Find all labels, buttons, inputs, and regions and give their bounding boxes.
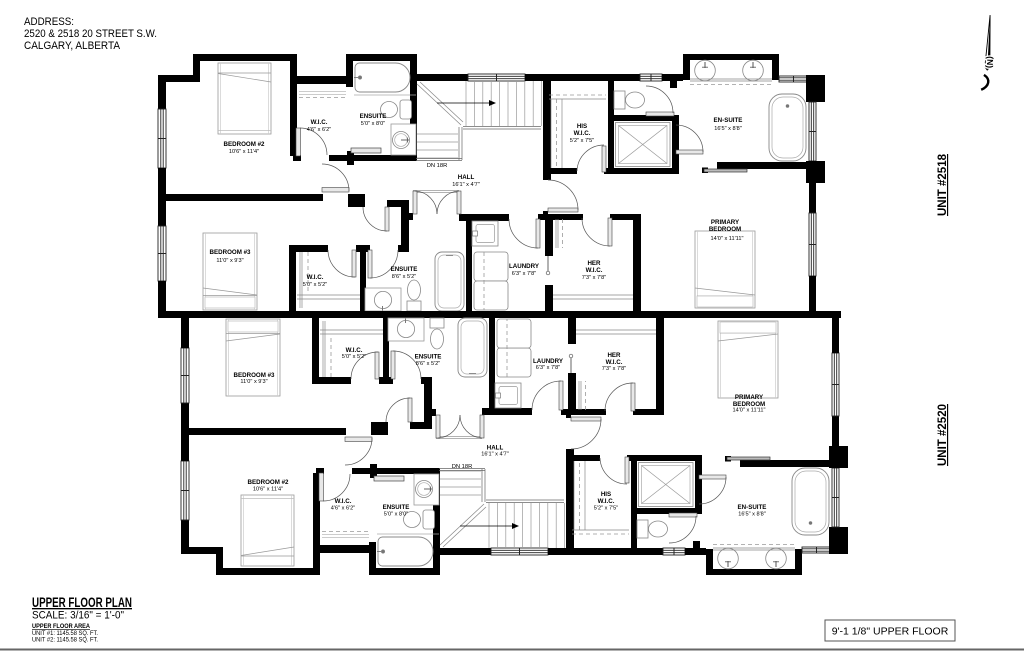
svg-text:5'0" x 5'2": 5'0" x 5'2"	[342, 354, 366, 360]
svg-text:9'-1 1/8" UPPER FLOOR: 9'-1 1/8" UPPER FLOOR	[832, 626, 949, 638]
svg-text:BEDROOM: BEDROOM	[709, 226, 741, 233]
svg-text:UNIT #2520: UNIT #2520	[937, 404, 949, 466]
svg-text:5'0" x 8'0": 5'0" x 8'0"	[384, 512, 408, 518]
svg-text:CALGARY, ALBERTA: CALGARY, ALBERTA	[24, 40, 121, 52]
svg-text:10'6" x 11'4": 10'6" x 11'4"	[229, 149, 259, 155]
svg-text:6'3" x 7'8": 6'3" x 7'8"	[512, 271, 536, 277]
svg-text:ENSUITE: ENSUITE	[415, 354, 442, 361]
svg-text:7'3" x 7'8": 7'3" x 7'8"	[582, 275, 606, 281]
svg-text:6'3" x 7'8": 6'3" x 7'8"	[536, 365, 560, 371]
svg-text:W.I.C.: W.I.C.	[574, 130, 591, 137]
svg-text:SCALE: 3/16" = 1'-0": SCALE: 3/16" = 1'-0"	[32, 610, 124, 622]
svg-text:W.I.C.: W.I.C.	[307, 274, 324, 281]
svg-text:BEDROOM #3: BEDROOM #3	[234, 372, 275, 379]
svg-text:5'2" x 7'5": 5'2" x 7'5"	[594, 506, 618, 512]
svg-text:LAUNDRY: LAUNDRY	[509, 263, 540, 270]
svg-text:W.I.C.: W.I.C.	[311, 119, 328, 126]
svg-text:W.I.C.: W.I.C.	[346, 347, 363, 354]
svg-text:HER: HER	[587, 260, 601, 267]
svg-text:2520 & 2518 20 STREET S.W.: 2520 & 2518 20 STREET S.W.	[24, 28, 157, 40]
svg-text:(N): (N)	[985, 56, 996, 68]
svg-text:11'0" x 9'3": 11'0" x 9'3"	[216, 258, 243, 264]
svg-text:5'2" x 7'5": 5'2" x 7'5"	[570, 138, 594, 144]
svg-text:5'0" x 8'0": 5'0" x 8'0"	[361, 121, 385, 127]
svg-text:16'1" x 4'7": 16'1" x 4'7"	[481, 452, 509, 458]
svg-text:W.I.C.: W.I.C.	[598, 498, 615, 505]
svg-text:W.I.C.: W.I.C.	[586, 267, 603, 274]
svg-text:W.I.C.: W.I.C.	[335, 498, 352, 505]
svg-text:BEDROOM #3: BEDROOM #3	[210, 249, 251, 256]
svg-text:LAUNDRY: LAUNDRY	[533, 358, 564, 365]
svg-text:UNIT #2518: UNIT #2518	[937, 153, 949, 216]
svg-text:16'1" x 4'7": 16'1" x 4'7"	[452, 182, 480, 188]
svg-text:EN-SUITE: EN-SUITE	[714, 117, 743, 124]
svg-text:ENSUITE: ENSUITE	[383, 504, 410, 511]
svg-text:7'3" x 7'8": 7'3" x 7'8"	[602, 366, 626, 372]
svg-text:W.I.C.: W.I.C.	[606, 359, 623, 366]
svg-text:HIS: HIS	[601, 491, 611, 498]
svg-text:ENSUITE: ENSUITE	[391, 266, 418, 273]
svg-text:UPPER FLOOR AREA: UPPER FLOOR AREA	[32, 623, 90, 630]
svg-text:BEDROOM #2: BEDROOM #2	[248, 479, 289, 486]
svg-text:UNIT #2: 1145.58 SQ. FT.: UNIT #2: 1145.58 SQ. FT.	[32, 638, 98, 644]
svg-text:10'6" x 11'4": 10'6" x 11'4"	[253, 487, 283, 493]
svg-text:EN-SUITE: EN-SUITE	[738, 504, 767, 511]
svg-text:ENSUITE: ENSUITE	[360, 113, 387, 120]
svg-text:8'6" x 5'2": 8'6" x 5'2"	[416, 361, 440, 367]
svg-text:HALL: HALL	[487, 445, 504, 452]
svg-text:ADDRESS:: ADDRESS:	[24, 16, 74, 28]
svg-text:DN 18R: DN 18R	[427, 163, 448, 169]
svg-text:16'5" x 8'8": 16'5" x 8'8"	[738, 512, 766, 518]
svg-text:4'6" x 6'2": 4'6" x 6'2"	[307, 127, 331, 133]
svg-text:16'5" x 8'8": 16'5" x 8'8"	[714, 126, 742, 132]
svg-text:BEDROOM #2: BEDROOM #2	[224, 141, 265, 148]
svg-text:14'0" x 11'11": 14'0" x 11'11"	[733, 408, 766, 414]
svg-text:HIS: HIS	[577, 123, 587, 130]
svg-text:PRIMARY: PRIMARY	[711, 219, 740, 226]
svg-text:UNIT #1: 1145.58 SQ. FT.: UNIT #1: 1145.58 SQ. FT.	[32, 631, 98, 637]
svg-text:4'6" x 6'2": 4'6" x 6'2"	[331, 506, 355, 512]
svg-text:8'6" x 5'2": 8'6" x 5'2"	[392, 274, 416, 280]
svg-text:DN 18R: DN 18R	[452, 464, 473, 470]
svg-text:14'0" x 11'11": 14'0" x 11'11"	[711, 236, 744, 242]
svg-text:HER: HER	[607, 352, 621, 359]
svg-text:11'0" x 9'3": 11'0" x 9'3"	[240, 379, 267, 385]
svg-text:UPPER FLOOR PLAN: UPPER FLOOR PLAN	[32, 595, 132, 610]
svg-text:HALL: HALL	[458, 174, 475, 181]
svg-text:5'0" x 5'2": 5'0" x 5'2"	[303, 282, 327, 288]
svg-text:PRIMARY: PRIMARY	[735, 394, 764, 401]
